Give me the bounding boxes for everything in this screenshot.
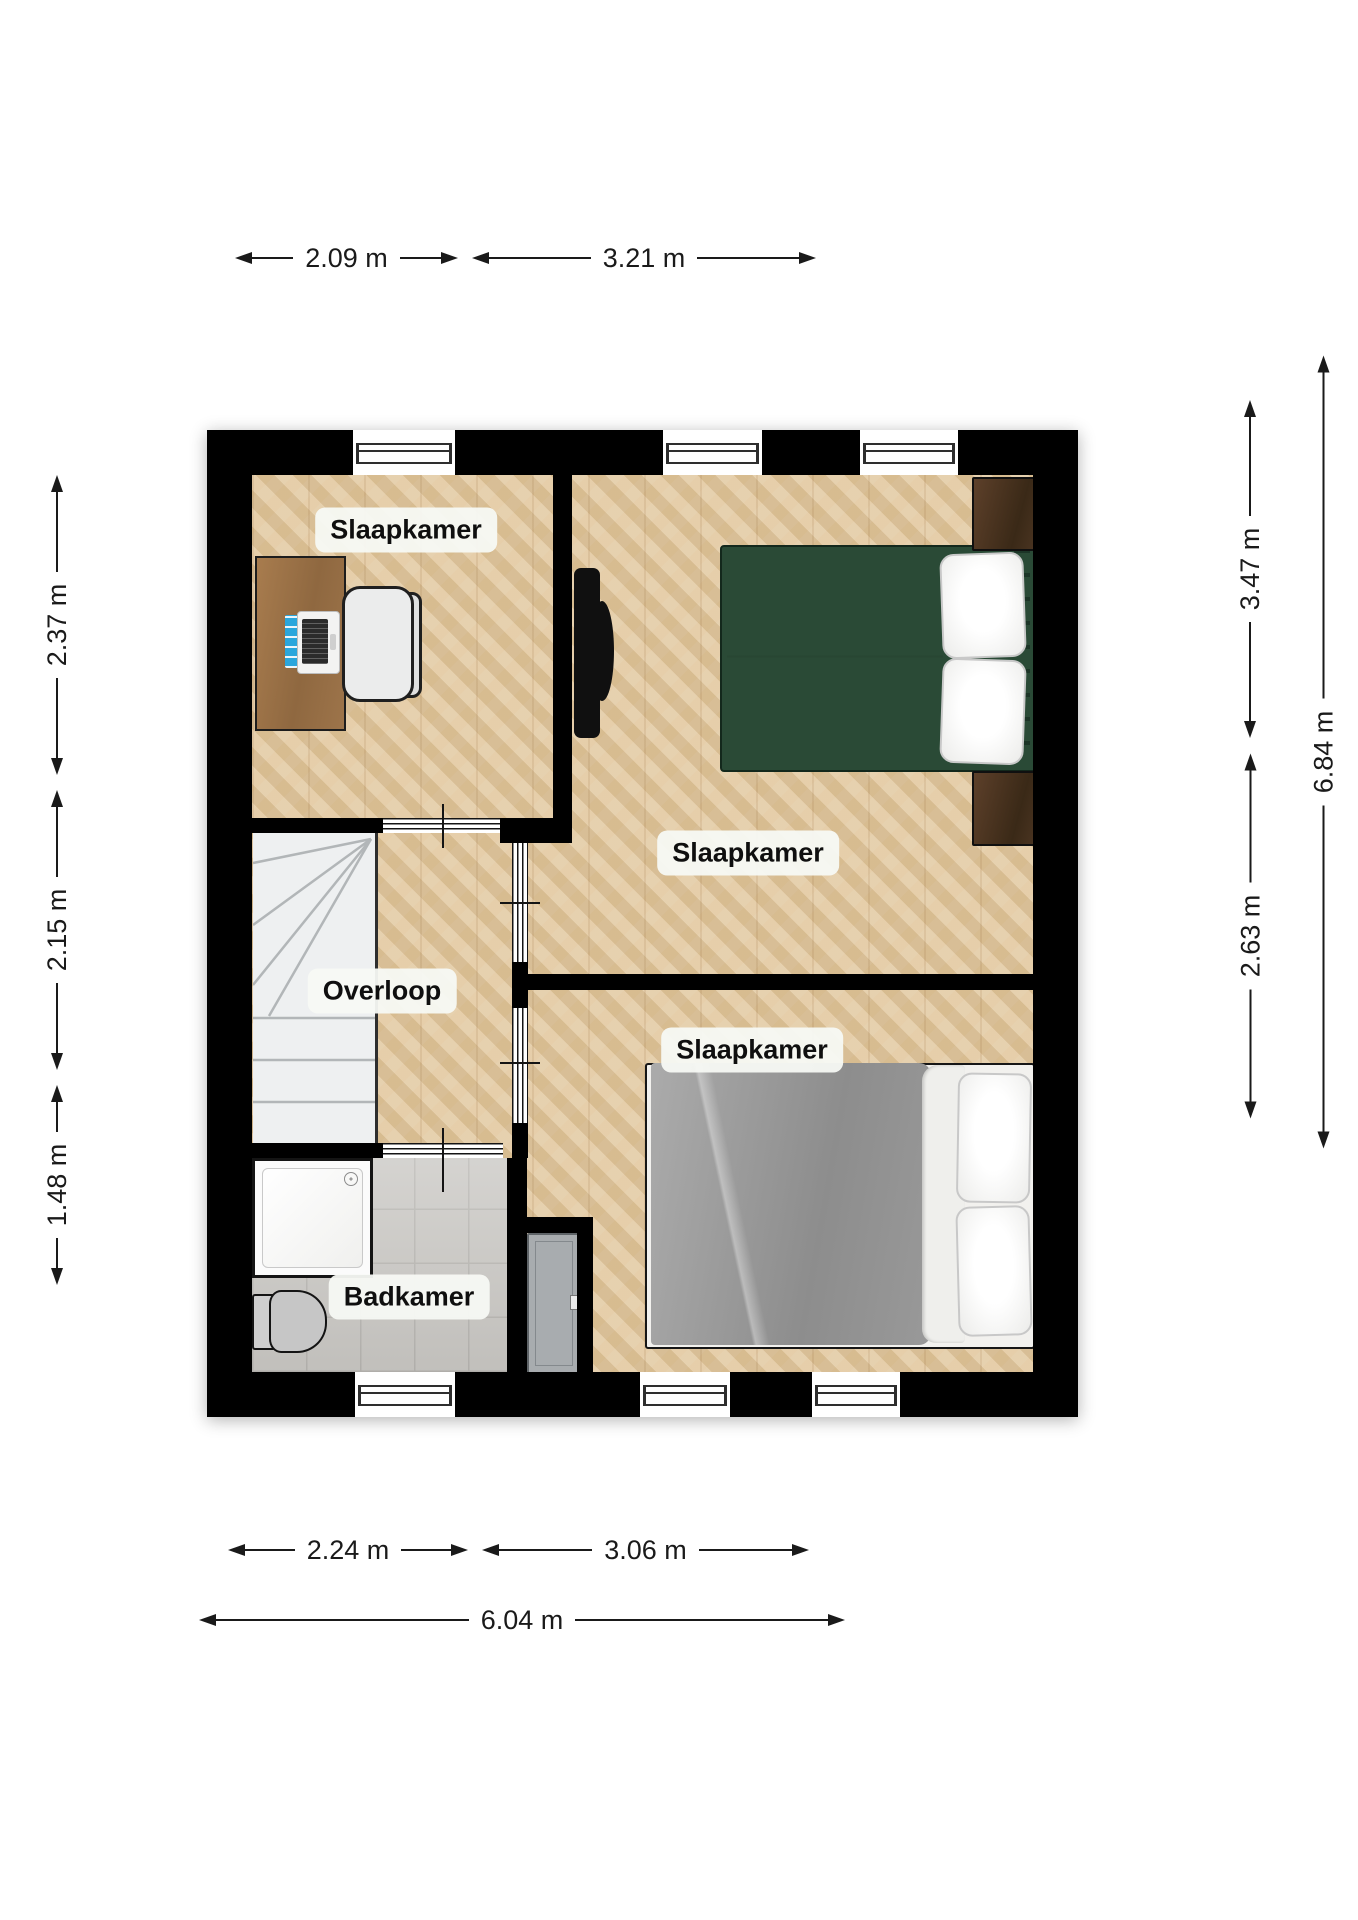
dimension-left-3: 1.48 m: [42, 1085, 72, 1285]
arrow-up-icon: [51, 1085, 63, 1102]
dimension-label: 6.04 m: [469, 1605, 576, 1636]
tv: [574, 568, 600, 738]
dimension-label: 3.21 m: [591, 243, 698, 274]
dimension-left-1: 2.37 m: [42, 475, 72, 775]
wall-bedrooms-right-divider: [528, 974, 1033, 990]
wall-bathroom-right: [507, 1158, 527, 1372]
arrow-left-icon: [482, 1544, 499, 1556]
room-label-badkamer: Badkamer: [329, 1275, 490, 1320]
dimension-label: 1.48 m: [42, 1132, 73, 1239]
wall-bedroom-landing: [252, 818, 383, 833]
window: [860, 430, 958, 475]
window-glazing: [643, 1385, 727, 1406]
wall-exterior-right: [1033, 430, 1078, 1417]
nightstand: [972, 477, 1037, 551]
laptop-touchpad: [330, 634, 336, 650]
room-label-overloop: Overloop: [308, 969, 457, 1014]
dimension-label: 2.09 m: [293, 243, 400, 274]
dimension-left-2: 2.15 m: [42, 790, 72, 1070]
toilet: [269, 1290, 327, 1353]
wall-corner-block: [500, 818, 572, 843]
wall-landing-block: [512, 962, 528, 1008]
shower: [252, 1158, 373, 1278]
dimension-label: 3.47 m: [1235, 516, 1266, 623]
wall-jog: [507, 1217, 593, 1233]
door-tick: [500, 902, 540, 904]
wall-exterior-left: [207, 430, 252, 1417]
window: [812, 1372, 900, 1417]
pillow: [956, 1072, 1032, 1203]
window-glazing: [666, 443, 759, 464]
nightstand: [972, 771, 1037, 846]
arrow-up-icon: [51, 790, 63, 807]
door-tick: [442, 804, 444, 848]
dimension-label: 2.24 m: [295, 1535, 402, 1566]
dimension-top-1: 2.09 m: [235, 243, 458, 273]
arrow-right-icon: [792, 1544, 809, 1556]
door-tick: [442, 1128, 444, 1192]
door-opening-bedroom-bottom: [512, 1008, 528, 1123]
arrow-right-icon: [799, 252, 816, 264]
shower-drain-icon: [344, 1172, 358, 1186]
arrow-left-icon: [472, 252, 489, 264]
door-leaf: [527, 1233, 581, 1374]
dimension-right-2: 2.63 m: [1236, 754, 1266, 1119]
window: [353, 430, 455, 475]
dimension-label: 2.37 m: [42, 572, 73, 679]
dimension-label: 2.63 m: [1235, 883, 1266, 990]
dimension-right-1: 3.47 m: [1235, 400, 1265, 738]
door-tick: [500, 1062, 540, 1064]
window-glazing: [815, 1385, 897, 1406]
window: [355, 1372, 455, 1417]
window: [640, 1372, 730, 1417]
room-label-slaapkamer-right: Slaapkamer: [657, 831, 839, 876]
arrow-up-icon: [51, 475, 63, 492]
arrow-down-icon: [1244, 721, 1256, 738]
laptop-keyboard: [302, 619, 328, 664]
arrow-left-icon: [235, 252, 252, 264]
arrow-left-icon: [199, 1614, 216, 1626]
window-glazing: [356, 443, 452, 464]
dimension-label: 3.06 m: [592, 1535, 699, 1566]
arrow-up-icon: [1245, 753, 1257, 770]
window: [663, 430, 762, 475]
arrow-down-icon: [51, 758, 63, 775]
dimension-top-2: 3.21 m: [472, 243, 816, 273]
window-glazing: [863, 443, 955, 464]
arrow-down-icon: [51, 1268, 63, 1285]
dimension-label: 2.15 m: [42, 877, 73, 984]
wall-landing-block: [512, 1123, 528, 1158]
room-label-slaapkamer-bottom-right: Slaapkamer: [661, 1028, 843, 1073]
dimension-right-total: 6.84 m: [1309, 356, 1339, 1149]
arrow-right-icon: [828, 1614, 845, 1626]
arrow-down-icon: [51, 1053, 63, 1070]
dimension-bottom-2: 3.06 m: [482, 1535, 809, 1565]
arrow-right-icon: [451, 1544, 468, 1556]
office-chair: [342, 586, 414, 702]
window-glazing: [358, 1385, 452, 1406]
dimension-bottom-total: 6.04 m: [199, 1605, 845, 1635]
arrow-down-icon: [1245, 1102, 1257, 1119]
floorplan-canvas: Slaapkamer Slaapkamer Slaapkamer Overloo…: [0, 0, 1358, 1920]
arrow-up-icon: [1318, 355, 1330, 372]
bed-gray-duvet: [651, 1063, 931, 1345]
arrow-left-icon: [228, 1544, 245, 1556]
dimension-bottom-1: 2.24 m: [228, 1535, 468, 1565]
pillow: [939, 658, 1027, 766]
room-label-slaapkamer-top-left: Slaapkamer: [315, 508, 497, 553]
arrow-down-icon: [1318, 1132, 1330, 1149]
wall-bedroom-divider: [553, 470, 572, 843]
pillow: [939, 552, 1027, 660]
arrow-up-icon: [1244, 400, 1256, 417]
bed-green-duvet: [727, 551, 943, 762]
arrow-right-icon: [441, 252, 458, 264]
wall-bedroom-left-lower: [577, 1233, 593, 1372]
wall-landing-bathroom: [252, 1143, 383, 1158]
door-panel: [535, 1241, 573, 1366]
pillow: [955, 1205, 1032, 1337]
dimension-label: 6.84 m: [1308, 699, 1339, 806]
